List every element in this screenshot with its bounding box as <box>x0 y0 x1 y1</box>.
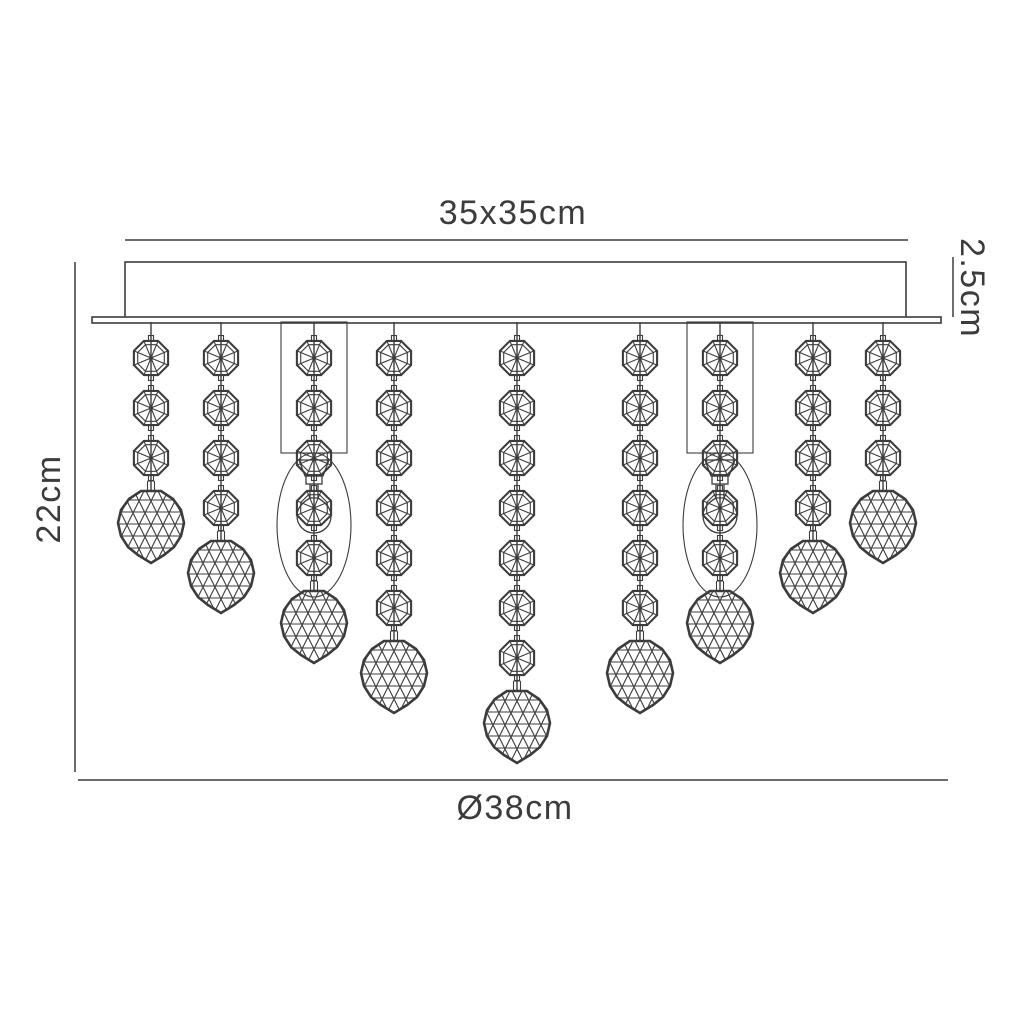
fixture-line-drawing <box>0 0 1024 1024</box>
dimension-label-canopy-depth: 2.5cm <box>955 238 989 338</box>
dimension-label-drop-height: 22cm <box>32 454 66 543</box>
dimension-label-diameter: Ø38cm <box>456 791 573 825</box>
crystal-ball-drop <box>766 477 1000 567</box>
bead-strand-6 <box>523 322 757 717</box>
diagram-canvas: 35x35cm 2.5cm 22cm Ø38cm <box>0 0 1024 1024</box>
bead-strand-4 <box>277 322 511 717</box>
crystal-ball-drop <box>523 627 757 717</box>
crystal-ball-drop <box>400 677 634 767</box>
dimension-label-width: 35x35cm <box>439 196 587 230</box>
bead-strand-5 <box>400 322 634 767</box>
crystal-ball-drop <box>277 627 511 717</box>
crystal-ball-drop <box>34 477 268 567</box>
canopy-box <box>125 262 906 318</box>
